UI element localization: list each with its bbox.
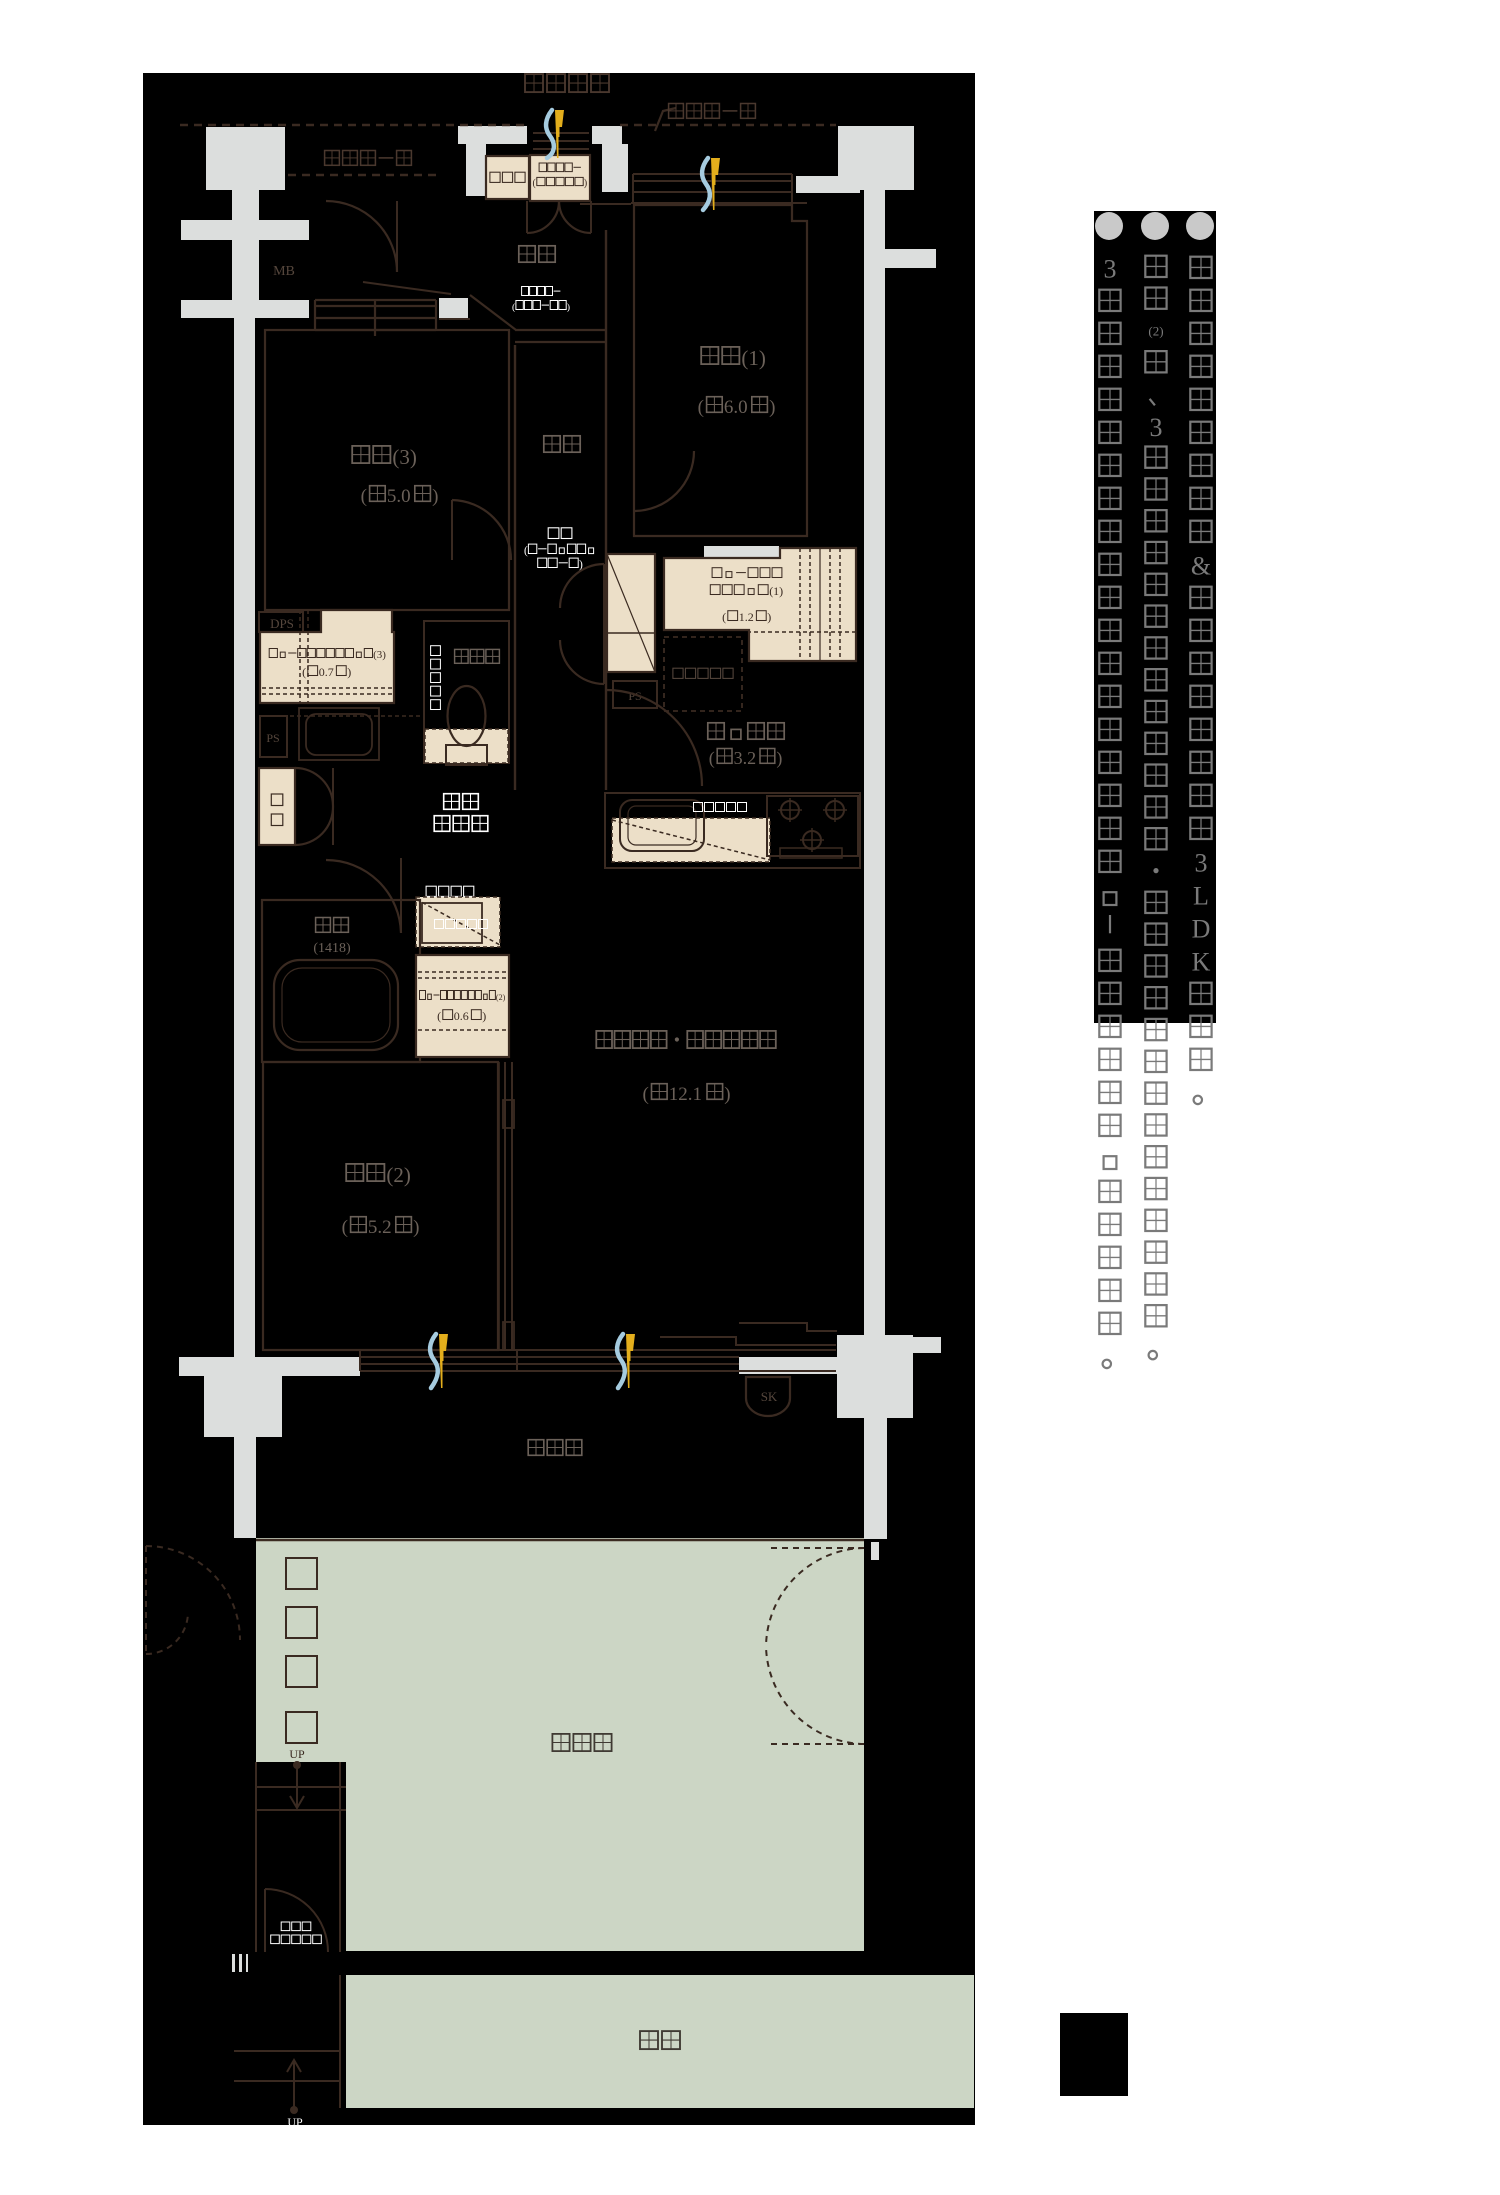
svg-text:5.2: 5.2 (368, 1217, 392, 1238)
svg-text:(3): (3) (392, 445, 417, 469)
svg-text:(2): (2) (496, 993, 506, 1002)
svg-text:3: 3 (1104, 255, 1117, 284)
svg-text:SK: SK (761, 1389, 778, 1404)
svg-text:): ) (776, 748, 782, 769)
svg-text:(1): (1) (741, 346, 766, 370)
svg-text:): ) (482, 1009, 486, 1023)
svg-text:PS: PS (266, 731, 279, 745)
svg-text:UP: UP (287, 2115, 303, 2129)
svg-text:): ) (567, 302, 570, 313)
svg-text:(1): (1) (769, 584, 783, 598)
svg-text:6.0: 6.0 (724, 397, 748, 418)
svg-text:): ) (413, 1217, 419, 1238)
svg-text:K: K (1192, 948, 1211, 977)
svg-text:(: ( (722, 610, 726, 624)
svg-text:D: D (1192, 915, 1211, 944)
svg-text:): ) (767, 610, 771, 624)
svg-text:(: ( (361, 486, 367, 507)
svg-text:): ) (432, 486, 438, 507)
svg-text:(2): (2) (1148, 323, 1163, 338)
svg-text:(: ( (524, 545, 528, 557)
svg-text:1.2: 1.2 (739, 610, 754, 624)
svg-text:UP: UP (289, 1747, 305, 1761)
svg-text:(3): (3) (373, 649, 386, 661)
svg-text:3: 3 (1195, 849, 1208, 878)
svg-text:(: ( (698, 397, 704, 418)
svg-text:0.7: 0.7 (319, 665, 334, 679)
svg-text:(2): (2) (386, 1163, 411, 1187)
svg-text:): ) (584, 178, 587, 189)
svg-text:(: ( (512, 302, 515, 313)
svg-text:5.0: 5.0 (387, 486, 411, 507)
svg-text:(: ( (643, 1084, 649, 1105)
svg-text:0.6: 0.6 (454, 1009, 469, 1023)
svg-text:(: ( (437, 1009, 441, 1023)
svg-text:3.2: 3.2 (734, 748, 757, 768)
svg-text:&: & (1191, 552, 1211, 581)
svg-text:(: ( (709, 748, 715, 769)
svg-text:(: ( (302, 665, 306, 679)
svg-text:(1418): (1418) (313, 941, 351, 956)
svg-text:L: L (1193, 882, 1209, 911)
svg-text:): ) (347, 665, 351, 679)
svg-text:(: ( (342, 1217, 348, 1238)
svg-text:MB: MB (273, 264, 295, 279)
svg-text:12.1: 12.1 (669, 1084, 702, 1105)
svg-text:3: 3 (1150, 413, 1163, 442)
svg-text:DPS: DPS (270, 616, 294, 631)
svg-text:): ) (769, 397, 775, 418)
svg-text:): ) (724, 1084, 730, 1105)
